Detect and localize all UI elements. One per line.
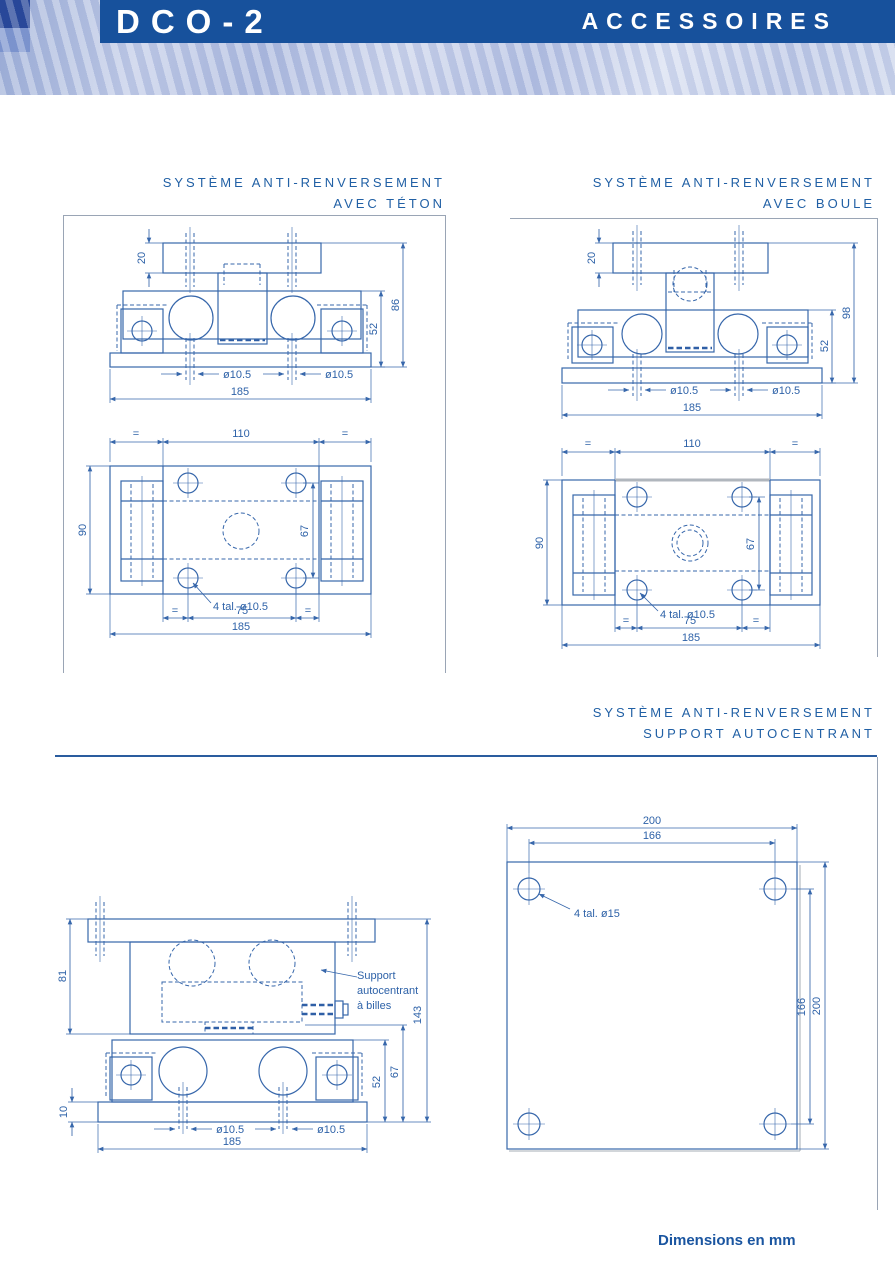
header-divider bbox=[0, 95, 895, 99]
section-title-line2: AVEC TÉTON bbox=[163, 193, 445, 214]
dim-label: = bbox=[172, 605, 178, 617]
header-corner-block-dark bbox=[0, 0, 30, 28]
header-banner: DCO-2 ACCESSOIRES bbox=[100, 0, 895, 43]
dim-label: 166 bbox=[796, 998, 808, 1016]
section-title-line2: SUPPORT AUTOCENTRANT bbox=[593, 723, 875, 744]
dim-label: 143 bbox=[412, 1006, 424, 1024]
dim-label: 200 bbox=[643, 815, 661, 827]
drawing-area-teton: ø10.5 ø10.5 185 52 86 20 = 110 = bbox=[63, 215, 445, 656]
dim-label: 90 bbox=[534, 537, 546, 549]
dim-label: = bbox=[623, 615, 629, 627]
drawing-teton-top-view: = 110 = 90 67 4 tal. ø10.5 = 75 = 185 bbox=[77, 428, 371, 638]
frame-boule-right-border bbox=[877, 218, 878, 657]
dim-label: 185 bbox=[683, 402, 701, 414]
dim-label: 75 bbox=[684, 615, 696, 627]
dim-label: 52 bbox=[371, 1076, 383, 1088]
dim-label: 52 bbox=[368, 323, 380, 335]
dim-label: 90 bbox=[77, 524, 89, 536]
dim-label: 110 bbox=[683, 438, 701, 450]
drawing-boule-top-view: = 110 = 90 67 4 tal. ø10.5 = 75 = 185 bbox=[534, 438, 820, 649]
support-label-line1: Support bbox=[357, 970, 396, 982]
section-title-teton: SYSTÈME ANTI-RENVERSEMENT AVEC TÉTON bbox=[163, 172, 445, 214]
dim-label: ø10.5 bbox=[772, 385, 800, 397]
dim-label: ø10.5 bbox=[317, 1124, 345, 1136]
drawing-boule-front-view: ø10.5 ø10.5 185 52 98 20 bbox=[562, 225, 858, 419]
dim-label: 98 bbox=[841, 307, 853, 319]
section-title-line2: AVEC BOULE bbox=[593, 193, 875, 214]
dim-label: 4 tal. ø15 bbox=[574, 908, 620, 920]
drawing-area-boule: ø10.5 ø10.5 185 52 98 20 = 110 = bbox=[510, 218, 877, 657]
support-label-line2: autocentrant bbox=[357, 985, 418, 997]
dim-label: ø10.5 bbox=[216, 1124, 244, 1136]
dim-label: = bbox=[133, 428, 139, 440]
section-title-autocentrant: SYSTÈME ANTI-RENVERSEMENT SUPPORT AUTOCE… bbox=[593, 702, 875, 744]
dim-label: ø10.5 bbox=[325, 369, 353, 381]
drawing-autocentrant-side-view: Support autocentrant à billes ø10.5 ø10.… bbox=[57, 896, 431, 1153]
section-title-line1: SYSTÈME ANTI-RENVERSEMENT bbox=[593, 172, 875, 193]
units-note: Dimensions en mm bbox=[658, 1232, 796, 1249]
dim-label: 52 bbox=[819, 340, 831, 352]
dim-label: 185 bbox=[232, 621, 250, 633]
section-title-line1: SYSTÈME ANTI-RENVERSEMENT bbox=[163, 172, 445, 193]
dim-label: 10 bbox=[58, 1106, 70, 1118]
section-title-boule: SYSTÈME ANTI-RENVERSEMENT AVEC BOULE bbox=[593, 172, 875, 214]
dim-label: 20 bbox=[136, 252, 148, 264]
dim-label: ø10.5 bbox=[670, 385, 698, 397]
dim-label: 200 bbox=[811, 997, 823, 1015]
dim-label: 67 bbox=[389, 1066, 401, 1078]
dim-label: = bbox=[792, 438, 798, 450]
header-corner-block-light bbox=[0, 28, 30, 52]
dim-label: = bbox=[305, 605, 311, 617]
page-title: ACCESSOIRES bbox=[582, 8, 837, 35]
dim-label: 67 bbox=[745, 538, 757, 550]
dim-label: = bbox=[585, 438, 591, 450]
dim-label: 185 bbox=[682, 632, 700, 644]
dim-label: = bbox=[342, 428, 348, 440]
drawing-area-autocentrant: Support autocentrant à billes ø10.5 ø10.… bbox=[55, 757, 877, 1210]
dim-label: 185 bbox=[223, 1136, 241, 1148]
dim-label: = bbox=[753, 615, 759, 627]
dim-label: 86 bbox=[390, 299, 402, 311]
dim-label: ø10.5 bbox=[223, 369, 251, 381]
dim-label: 67 bbox=[299, 525, 311, 537]
dim-label: 81 bbox=[57, 970, 69, 982]
section-title-line1: SYSTÈME ANTI-RENVERSEMENT bbox=[593, 702, 875, 723]
frame-autocentrant-right-border bbox=[877, 757, 878, 1210]
support-label-line3: à billes bbox=[357, 1000, 392, 1012]
product-name: DCO-2 bbox=[116, 3, 274, 41]
dim-label: 20 bbox=[586, 252, 598, 264]
drawing-baseplate-top-view: 4 tal. ø15 200 166 166 200 bbox=[507, 815, 829, 1151]
dim-label: 110 bbox=[232, 428, 250, 440]
dim-label: 166 bbox=[643, 830, 661, 842]
dim-label: 185 bbox=[231, 386, 249, 398]
dim-label: 75 bbox=[236, 605, 248, 617]
drawing-teton-front-view: ø10.5 ø10.5 185 52 86 20 bbox=[110, 227, 407, 403]
